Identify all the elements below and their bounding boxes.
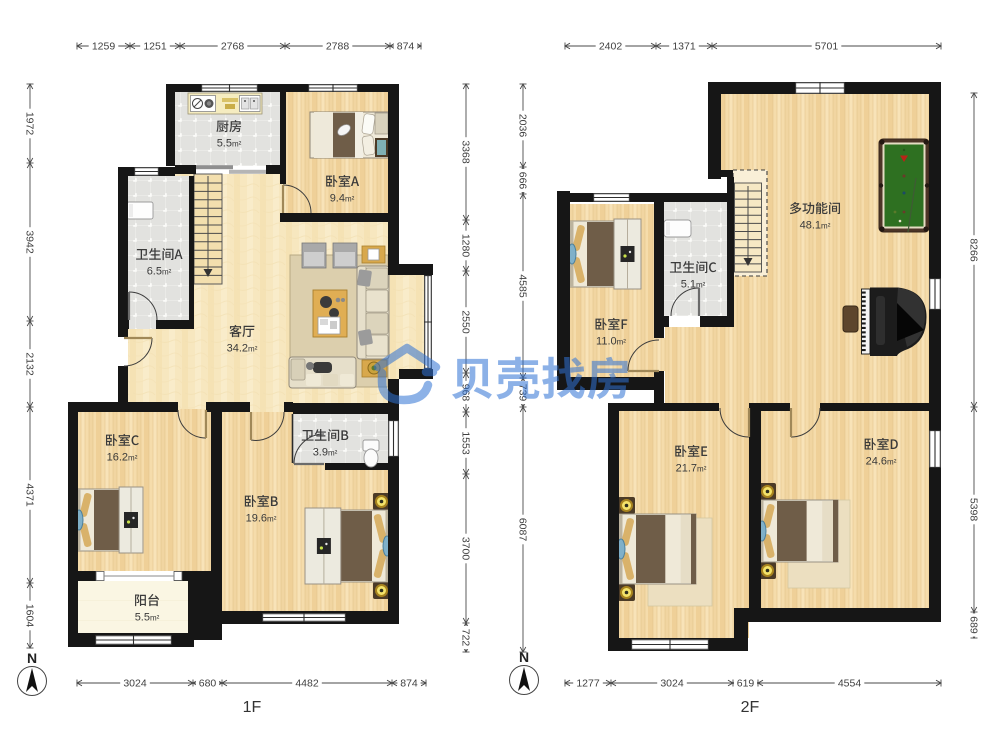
svg-text:1259: 1259 [92, 41, 116, 53]
svg-text:3024: 3024 [123, 678, 147, 690]
svg-text:N: N [519, 649, 529, 665]
svg-text:1604: 1604 [23, 604, 35, 628]
svg-text:34.2m²: 34.2m² [227, 343, 258, 355]
svg-text:3942: 3942 [23, 230, 35, 254]
svg-text:N: N [27, 650, 37, 666]
svg-text:2132: 2132 [23, 352, 35, 376]
svg-text:1251: 1251 [143, 41, 167, 53]
svg-text:5.5m²: 5.5m² [217, 138, 242, 150]
svg-text:5.5m²: 5.5m² [135, 612, 160, 624]
svg-text:9.4m²: 9.4m² [330, 193, 355, 205]
svg-text:16.2m²: 16.2m² [107, 452, 138, 464]
svg-text:619: 619 [737, 678, 755, 690]
svg-text:1972: 1972 [23, 112, 35, 136]
svg-text:19.6m²: 19.6m² [246, 513, 277, 525]
svg-text:4482: 4482 [295, 678, 319, 690]
svg-text:4371: 4371 [23, 483, 35, 507]
svg-text:4585: 4585 [516, 274, 528, 298]
svg-text:8266: 8266 [967, 238, 979, 262]
svg-text:6.5m²: 6.5m² [147, 266, 172, 278]
svg-text:680: 680 [199, 678, 217, 690]
svg-text:1277: 1277 [576, 678, 600, 690]
svg-text:666: 666 [516, 172, 528, 190]
svg-text:2402: 2402 [599, 41, 623, 53]
svg-text:3368: 3368 [459, 140, 471, 164]
svg-text:24.6m²: 24.6m² [866, 456, 897, 468]
svg-text:2550: 2550 [459, 310, 471, 334]
svg-text:3700: 3700 [459, 537, 471, 561]
svg-text:722: 722 [459, 629, 471, 647]
svg-text:689: 689 [967, 616, 979, 634]
svg-text:4554: 4554 [838, 678, 862, 690]
svg-text:1553: 1553 [459, 431, 471, 455]
svg-text:874: 874 [397, 41, 415, 53]
svg-text:2036: 2036 [516, 114, 528, 138]
svg-text:1371: 1371 [672, 41, 696, 53]
svg-text:2788: 2788 [326, 41, 350, 53]
svg-text:3024: 3024 [660, 678, 684, 690]
svg-text:1280: 1280 [459, 234, 471, 258]
svg-text:2F: 2F [741, 699, 760, 716]
svg-text:48.1m²: 48.1m² [800, 220, 831, 232]
svg-text:5.1m²: 5.1m² [681, 279, 706, 291]
svg-text:5701: 5701 [815, 41, 839, 53]
svg-text:1F: 1F [243, 699, 262, 716]
svg-text:6087: 6087 [516, 518, 528, 542]
svg-text:874: 874 [400, 678, 418, 690]
svg-text:3.9m²: 3.9m² [313, 447, 338, 459]
svg-text:11.0m²: 11.0m² [596, 336, 626, 348]
svg-text:2768: 2768 [221, 41, 245, 53]
svg-text:5398: 5398 [967, 498, 979, 522]
svg-text:21.7m²: 21.7m² [676, 463, 707, 475]
